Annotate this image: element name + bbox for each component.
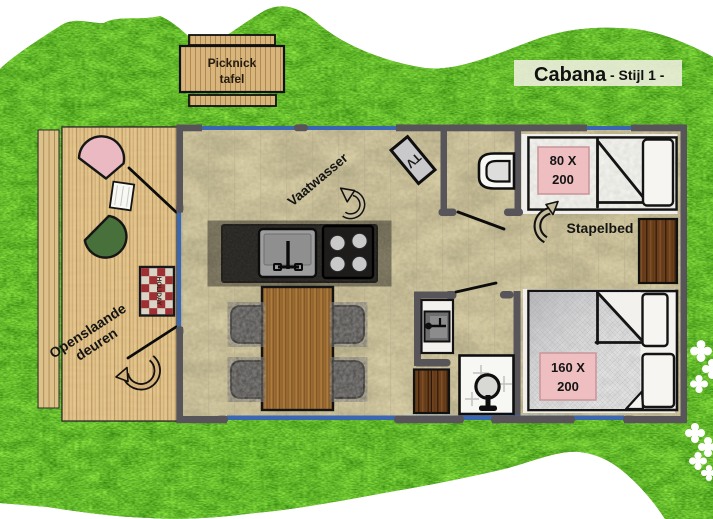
svg-text:Stapelbed: Stapelbed [567, 220, 634, 236]
svg-text:- Stijl 1 -: - Stijl 1 - [610, 67, 665, 83]
svg-text:200: 200 [552, 172, 574, 187]
svg-text:80 X: 80 X [550, 153, 577, 168]
svg-text:tafel: tafel [220, 72, 245, 86]
svg-text:Cabana: Cabana [534, 64, 607, 86]
svg-text:Picknick: Picknick [208, 56, 257, 70]
svg-text:HOLIDAY: HOLIDAY [155, 277, 162, 306]
svg-text:160 X: 160 X [551, 360, 585, 375]
svg-text:200: 200 [557, 379, 579, 394]
